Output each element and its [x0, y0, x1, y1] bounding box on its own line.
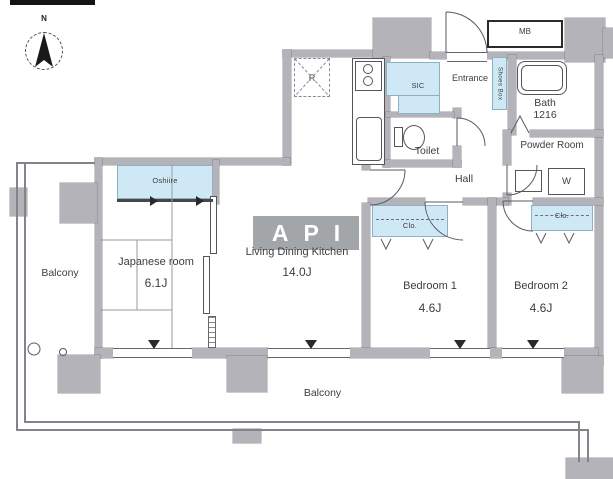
room-size-bath: 1216 [523, 110, 567, 122]
balcony-drain [28, 343, 40, 355]
wall [362, 203, 370, 356]
room-label-hall: Hall [446, 174, 482, 186]
pillar [562, 356, 603, 393]
pillar [227, 356, 267, 392]
closet-dashed-line [376, 219, 444, 220]
room-size-japanese-room: 6.1J [103, 277, 209, 290]
wall [283, 50, 291, 165]
wall [453, 108, 461, 118]
bathtub-inner [521, 65, 563, 91]
room-label-powder-room: Powder Room [517, 140, 587, 151]
watermark: API [253, 216, 359, 250]
wall [595, 55, 603, 365]
pillar [60, 183, 97, 223]
shoe-in-closet [398, 95, 440, 114]
closet-hanger-marks [381, 239, 433, 249]
bedroom2-door-arc [503, 201, 533, 231]
toilet-door-arc [457, 118, 485, 146]
balcony-railing [587, 429, 589, 462]
room-label-japanese-room: Japanese room [103, 256, 209, 268]
wall [503, 130, 511, 165]
balcony-railing [16, 162, 18, 430]
room-size-bedroom-2: 4.6J [508, 302, 574, 315]
pillar [58, 355, 100, 393]
wall [603, 28, 613, 58]
compass-north-label: N [38, 15, 50, 24]
compass-icon [25, 32, 63, 70]
wall [95, 158, 290, 165]
wall [383, 160, 461, 167]
wall [533, 198, 603, 205]
burner-icon [363, 64, 373, 74]
wall [368, 198, 425, 205]
wall [430, 52, 447, 59]
room-label-bedroom-2: Bedroom 2 [508, 280, 574, 292]
toilet-tank [394, 127, 403, 147]
closet-hanger-marks [536, 233, 574, 243]
kitchen-sink [356, 117, 382, 161]
balcony-railing [24, 421, 578, 423]
room-label-bath: Bath [523, 98, 567, 110]
pillar [373, 18, 431, 58]
window [430, 348, 490, 358]
sic-label: SIC [398, 82, 438, 90]
room-label-balcony-left: Balcony [28, 268, 92, 280]
burner-icon [363, 76, 373, 86]
shoe-in-closet [386, 62, 440, 96]
oshiire-sliding-track [117, 199, 213, 202]
room-label-entrance: Entrance [442, 73, 498, 83]
floor-plan: N Shoes Box [0, 0, 613, 479]
washer-box: W [548, 168, 585, 195]
room-size-bedroom-1: 4.6J [397, 302, 463, 315]
room-label-ldk: Living Dining Kitchen [234, 246, 360, 258]
closet2-label: Clo. [531, 212, 593, 220]
wall [463, 198, 508, 205]
oshiire-label: Oshiire [117, 177, 213, 185]
wall [283, 50, 383, 57]
wall [488, 198, 496, 356]
scale-bar [10, 0, 95, 5]
closet1-label: Clo. [372, 222, 448, 230]
sliding-door [210, 196, 217, 254]
balcony-railing [24, 162, 26, 422]
pillar [233, 429, 261, 443]
balcony-railing [578, 421, 580, 462]
window [502, 348, 564, 358]
sliding-door-track [208, 316, 216, 348]
room-label-toilet: Toilet [405, 146, 449, 158]
room-label-balcony-bottom: Balcony [285, 388, 360, 400]
window [268, 348, 350, 358]
wall [490, 348, 502, 358]
pillar [566, 458, 613, 479]
balcony-railing [16, 162, 95, 164]
powder-sink [515, 170, 542, 192]
window [113, 348, 192, 358]
room-size-ldk: 14.0J [234, 266, 360, 279]
wall [453, 146, 461, 167]
balcony-railing [16, 429, 587, 431]
entrance-threshold [447, 52, 487, 62]
room-label-bedroom-1: Bedroom 1 [397, 280, 463, 292]
entrance-door-arc [446, 12, 487, 53]
meter-box-label: MB [487, 28, 563, 37]
shoes-box: Shoes Box [492, 57, 507, 110]
wall [530, 130, 603, 137]
wall [350, 348, 430, 358]
refrigerator-space: R [294, 58, 330, 97]
wall [508, 55, 516, 135]
